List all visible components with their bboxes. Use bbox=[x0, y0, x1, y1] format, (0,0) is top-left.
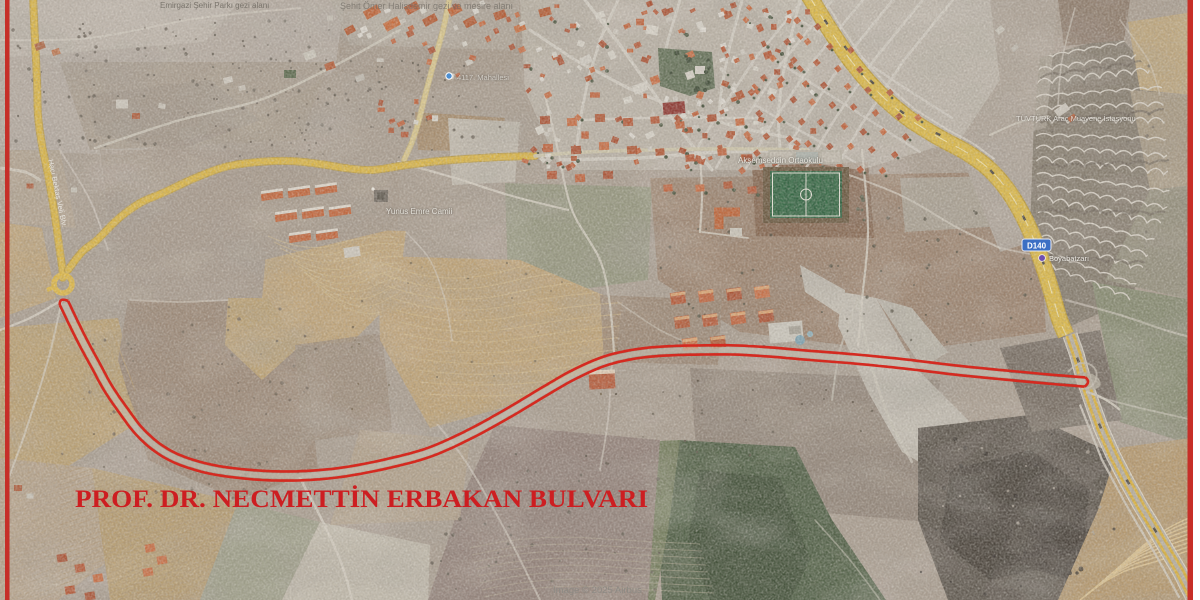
svg-text:Boyabatzarı: Boyabatzarı bbox=[1049, 254, 1089, 263]
svg-text:Yunus Emre Camii: Yunus Emre Camii bbox=[386, 207, 452, 216]
svg-text:Şehit Ömer Halisdemir gezi ve: Şehit Ömer Halisdemir gezi ve mesire ala… bbox=[340, 1, 513, 11]
svg-text:4117. Mahallesi: 4117. Mahallesi bbox=[457, 73, 509, 82]
svg-text:Emirgazi Şehir Parkı gezi alan: Emirgazi Şehir Parkı gezi alanı bbox=[160, 1, 269, 10]
svg-text:PROF. DR. NECMETTİN ERBAKAN BU: PROF. DR. NECMETTİN ERBAKAN BULVARI bbox=[75, 484, 648, 513]
svg-text:Image © 2025 Airbus: Image © 2025 Airbus bbox=[553, 585, 642, 596]
svg-text:TÜVTÜRK Araç Muayene İstasyonu: TÜVTÜRK Araç Muayene İstasyonu bbox=[1016, 114, 1136, 123]
svg-text:Akşemseddin Ortaokulu: Akşemseddin Ortaokulu bbox=[738, 156, 823, 165]
svg-text:D140: D140 bbox=[1027, 242, 1047, 251]
